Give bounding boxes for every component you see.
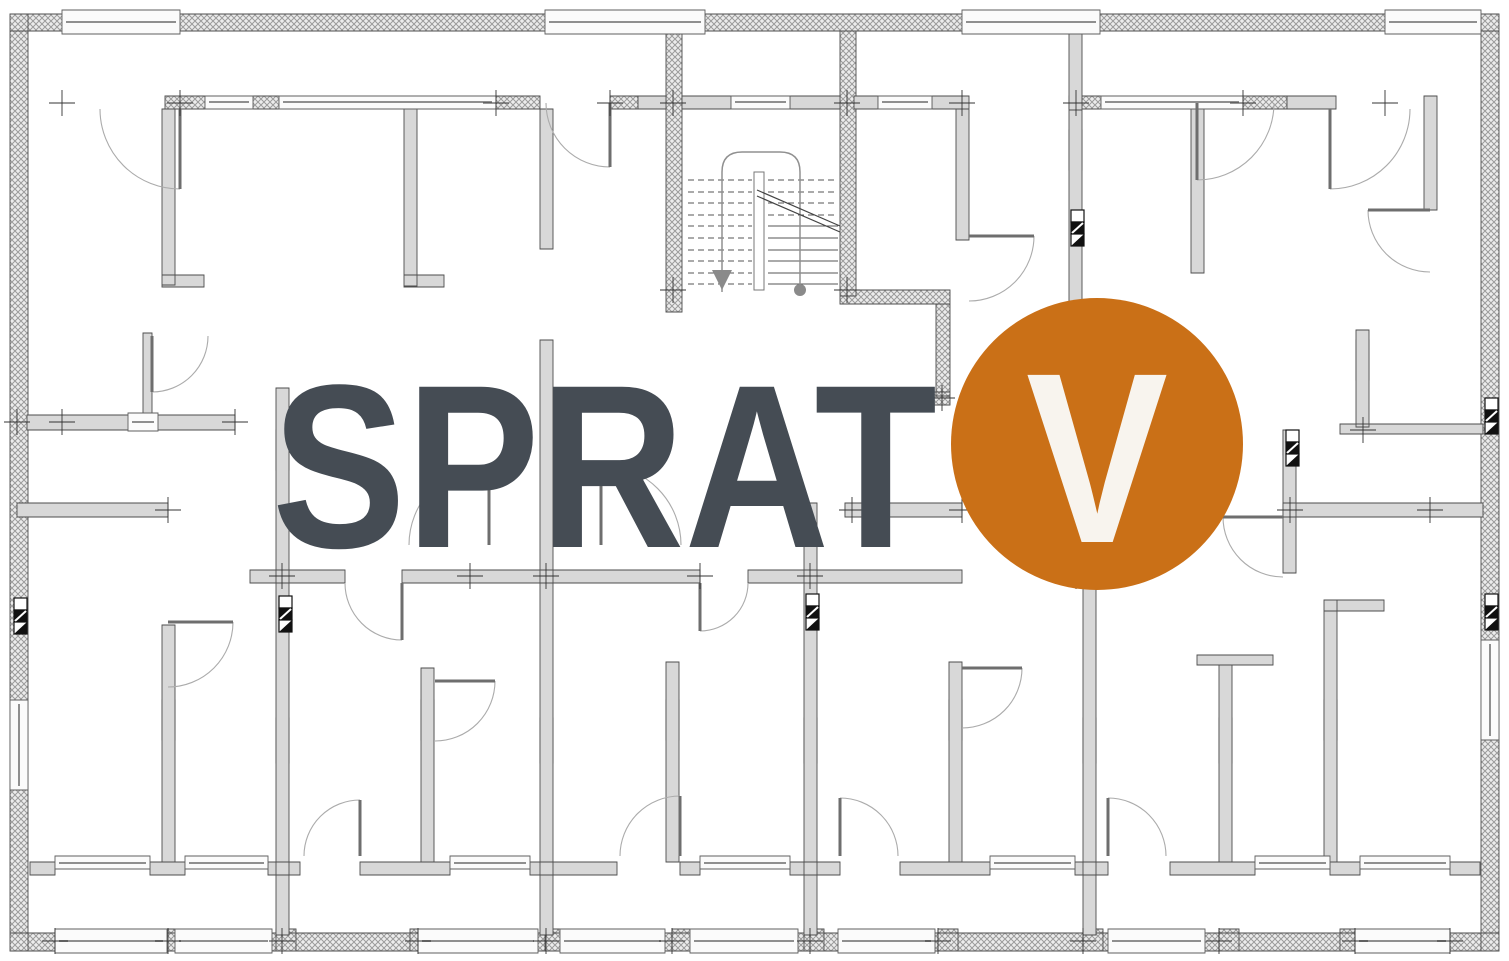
- stair-down-arrow-icon: [712, 270, 732, 290]
- floor-plan-page: SPRAT V: [0, 0, 1509, 961]
- stair-walkline-start-dot: [794, 284, 806, 296]
- floor-badge-letter: V: [1026, 323, 1168, 594]
- floor-badge[interactable]: V: [951, 298, 1243, 594]
- floor-title: SPRAT: [272, 337, 937, 597]
- stair-stringer: [754, 172, 764, 290]
- staircase: [688, 152, 840, 296]
- floor-plan-drawing: SPRAT V: [0, 0, 1509, 961]
